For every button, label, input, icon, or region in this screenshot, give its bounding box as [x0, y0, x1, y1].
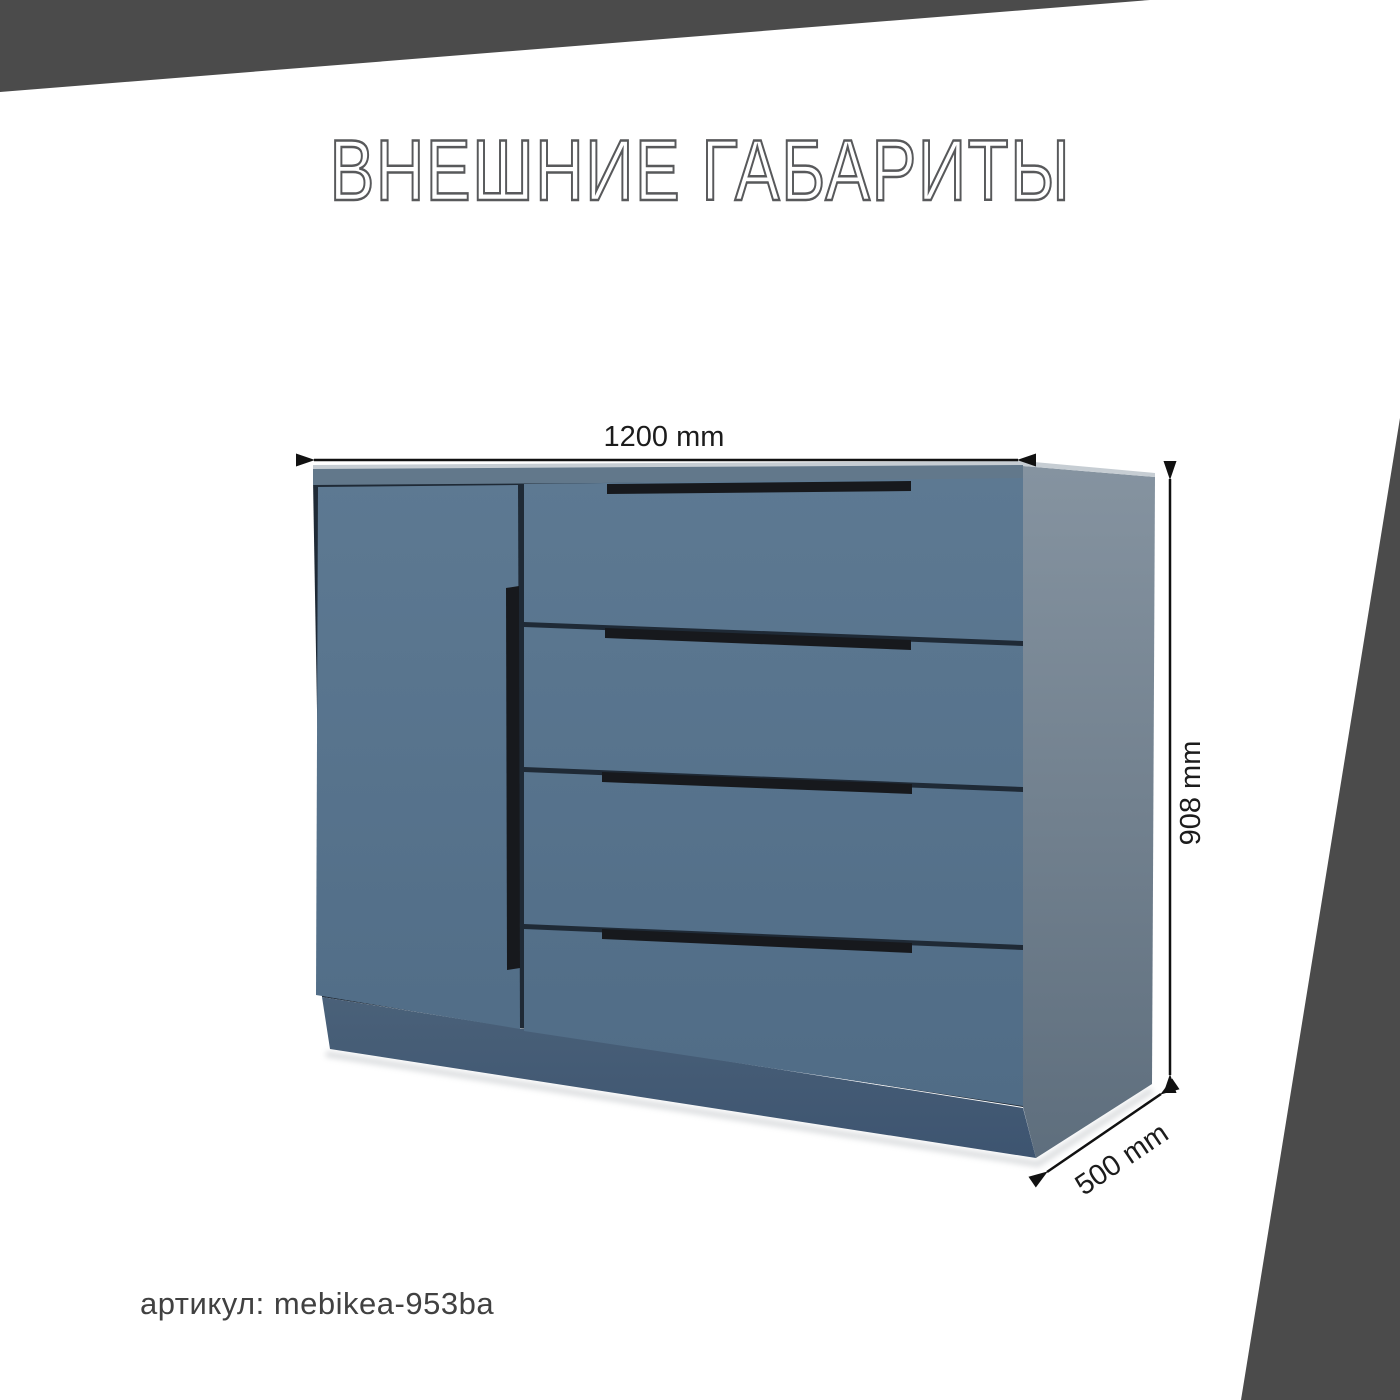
- door-handle: [506, 586, 520, 970]
- width-dimension: 1200 mm: [314, 421, 1018, 460]
- drawer-1: [524, 478, 1023, 641]
- sku-label: артикул: mebikea-953ba: [140, 1286, 494, 1322]
- door-panel: [316, 485, 520, 1029]
- height-dimension: 908 mm: [1170, 479, 1207, 1075]
- height-dimension-label: 908 mm: [1175, 741, 1207, 846]
- drawer-2: [524, 627, 1023, 787]
- page: ВНЕШНИЕ ГАБАРИТЫ: [0, 0, 1400, 1400]
- page-title-wrap: ВНЕШНИЕ ГАБАРИТЫ: [0, 128, 1400, 214]
- page-title: ВНЕШНИЕ ГАБАРИТЫ: [329, 128, 1071, 214]
- width-dimension-label: 1200 mm: [604, 421, 725, 453]
- side-panel: [1023, 466, 1155, 1158]
- drawer-3: [524, 772, 1023, 945]
- cabinet: [313, 461, 1155, 1158]
